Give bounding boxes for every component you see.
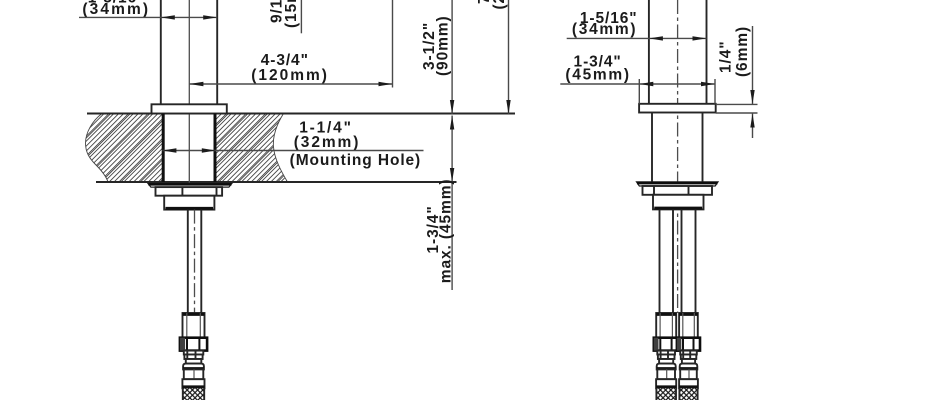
svg-text:(120mm): (120mm) xyxy=(251,67,329,84)
svg-text:(Mounting Hole): (Mounting Hole) xyxy=(290,152,421,169)
svg-text:(200mm): (200mm) xyxy=(491,0,508,10)
svg-text:(6mm): (6mm) xyxy=(734,26,751,77)
svg-text:(45mm): (45mm) xyxy=(565,66,630,83)
svg-text:(34mm): (34mm) xyxy=(572,21,637,38)
svg-text:max. (45mm): max. (45mm) xyxy=(437,179,454,284)
svg-text:(15mm): (15mm) xyxy=(283,0,300,28)
svg-text:1/4": 1/4" xyxy=(718,41,735,74)
svg-text:(90mm): (90mm) xyxy=(435,15,452,76)
svg-text:(32mm): (32mm) xyxy=(294,134,361,151)
svg-text:(34mm): (34mm) xyxy=(82,1,150,18)
